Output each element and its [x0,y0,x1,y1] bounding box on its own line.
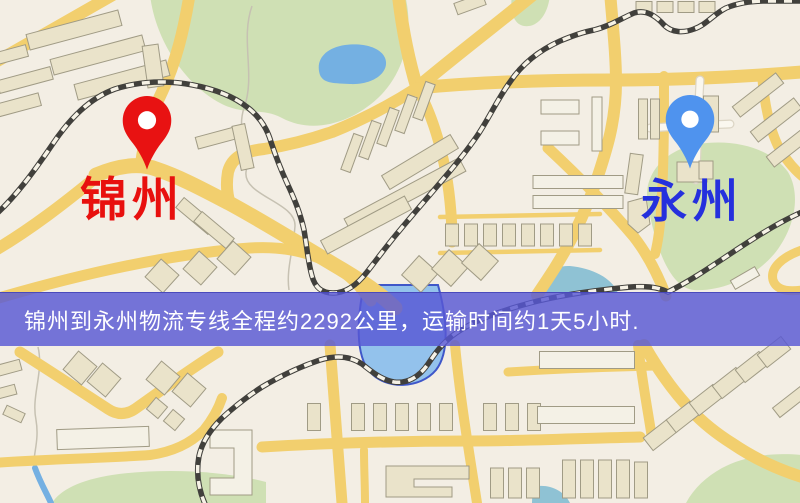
destination-pin[interactable] [662,95,718,178]
origin-city-label: 锦州 [80,176,184,223]
destination-city-label: 永州 [641,178,743,224]
logistics-route-map: 锦州 永州 锦州到永州物流专线全程约2292公里，运输时间约1天5小时. [0,0,800,503]
route-info-text: 锦州到永州物流专线全程约2292公里，运输时间约1天5小时. [0,304,640,336]
origin-pin[interactable] [119,96,175,179]
blue-map-pin-icon [662,95,718,173]
map-canvas [0,0,800,503]
route-info-banner: 锦州到永州物流专线全程约2292公里，运输时间约1天5小时. [0,292,800,346]
red-map-pin-icon [119,96,175,174]
